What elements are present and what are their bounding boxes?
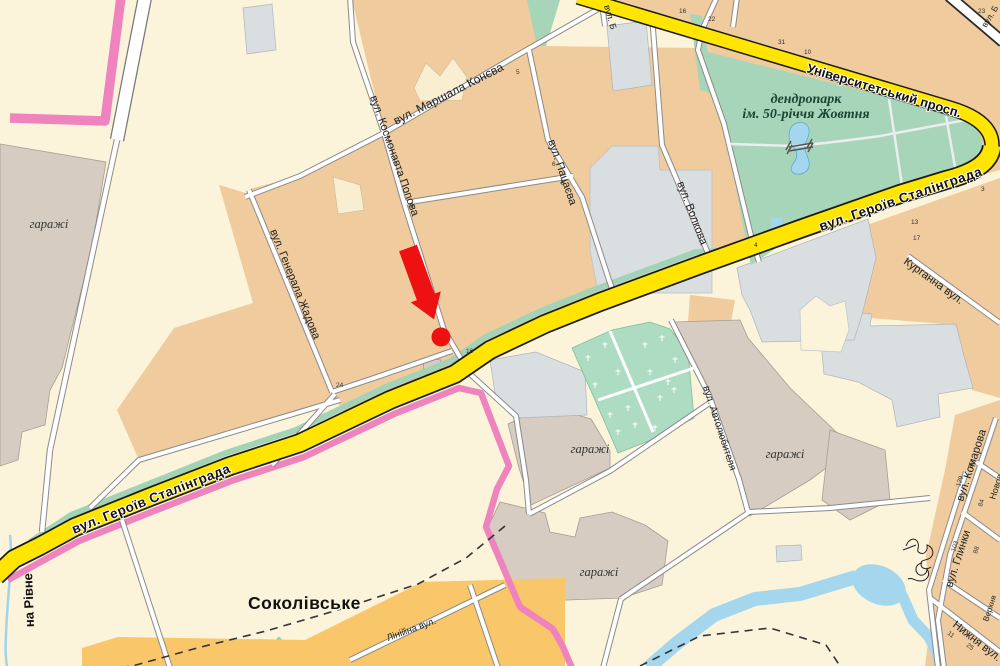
svg-text:Соколівське: Соколівське: [248, 593, 361, 613]
svg-text:6: 6: [552, 161, 556, 168]
svg-text:гаражі: гаражі: [766, 447, 805, 461]
svg-text:16: 16: [679, 8, 687, 15]
svg-text:гаражі: гаражі: [580, 565, 619, 579]
svg-text:ім. 50-річчя Жовтня: ім. 50-річчя Жовтня: [742, 107, 869, 122]
svg-text:17: 17: [913, 235, 921, 242]
svg-text:24: 24: [336, 382, 344, 389]
svg-text:22: 22: [708, 16, 716, 23]
svg-text:10: 10: [804, 49, 812, 56]
svg-text:на Рівне: на Рівне: [20, 573, 37, 628]
svg-text:3: 3: [981, 186, 985, 193]
svg-text:гаражі: гаражі: [571, 442, 610, 456]
svg-text:9: 9: [410, 203, 414, 210]
svg-text:дендропарк: дендропарк: [771, 92, 843, 107]
svg-text:31: 31: [778, 39, 786, 46]
svg-text:8: 8: [561, 180, 565, 187]
svg-text:16: 16: [466, 348, 474, 355]
svg-text:гаражі: гаражі: [30, 217, 69, 231]
svg-text:5: 5: [516, 69, 520, 76]
svg-text:13: 13: [911, 219, 919, 226]
svg-text:4: 4: [754, 242, 758, 249]
